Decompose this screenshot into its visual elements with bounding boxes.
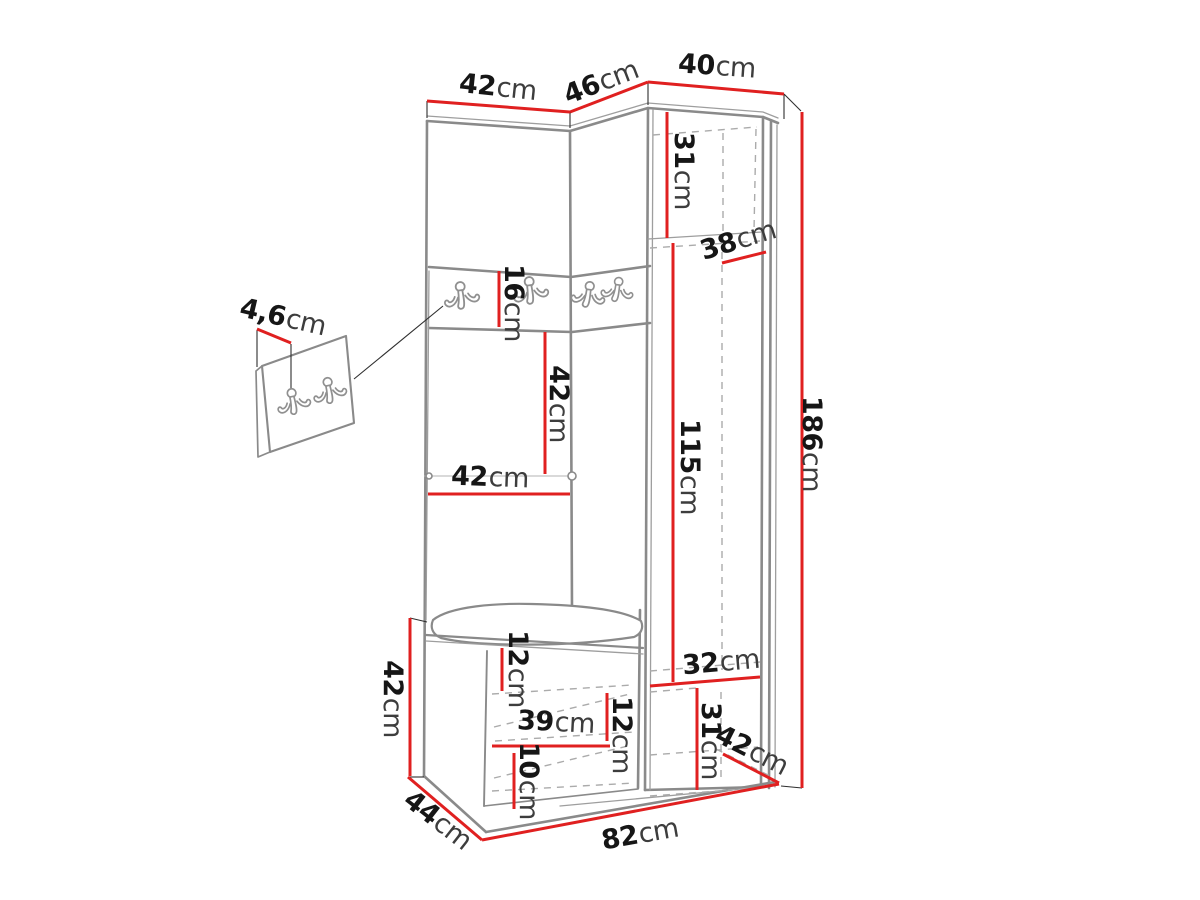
dimension-label-bench-height: 42cm xyxy=(378,660,409,738)
dimension-line-top-width-left xyxy=(427,101,570,112)
dimension-label-open-section-width: 42cm xyxy=(451,460,530,494)
dimension-label-bench-depth: 44cm xyxy=(398,784,478,856)
dimension-label-bench-shelf-width: 39cm xyxy=(516,704,595,739)
dimension-label-top-width-left: 42cm xyxy=(458,68,539,107)
bench-cushion xyxy=(432,604,642,645)
coat-hook-icon xyxy=(442,280,480,311)
dimension-label-upper-right-height: 31cm xyxy=(669,132,700,210)
dimension-line-top-width-right xyxy=(648,82,784,94)
dimension-label-bottom-width: 82cm xyxy=(599,812,681,856)
dimension-label-bench-right-gap: 12cm xyxy=(607,696,638,774)
dimension-label-lower-right-width: 32cm xyxy=(681,643,761,681)
furniture-dimension-diagram: 42cm46cm40cm31cm38cm115cm186cm16cm42cm42… xyxy=(0,0,1200,900)
coat-hook-icon xyxy=(600,275,635,303)
dimension-label-total-height: 186cm xyxy=(797,396,828,492)
bench-inner-left xyxy=(484,651,487,806)
hook-band-top xyxy=(429,266,650,277)
dimension-labels: 42cm46cm40cm31cm38cm115cm186cm16cm42cm42… xyxy=(237,48,828,856)
dimension-label-bench-top-gap: 12cm xyxy=(503,630,534,708)
hook-panel-face xyxy=(262,336,354,452)
dimension-label-middle-right-height: 115cm xyxy=(675,419,706,515)
wardrobe-diagram-svg: 42cm46cm40cm31cm38cm115cm186cm16cm42cm42… xyxy=(0,0,1200,900)
junction-dot xyxy=(426,473,432,479)
dimension-label-top-width-corner: 46cm xyxy=(559,54,643,111)
dimension-label-open-section-height: 42cm xyxy=(544,365,575,443)
detail-leader-line xyxy=(354,306,443,379)
dimension-label-panel-thickness: 4,6cm xyxy=(237,292,329,342)
hook-panel-detail xyxy=(256,336,354,457)
bench-interior-bottom xyxy=(484,789,638,806)
dimension-label-top-width-right: 40cm xyxy=(677,48,757,84)
cabinet-left-edge xyxy=(645,108,648,790)
dimension-label-bench-bottom-gap: 10cm xyxy=(514,742,545,820)
junction-dot xyxy=(568,472,576,480)
hook-band-bottom xyxy=(429,323,650,332)
dimension-label-hook-band-height: 16cm xyxy=(499,264,530,342)
left-panel-edge xyxy=(424,121,427,776)
